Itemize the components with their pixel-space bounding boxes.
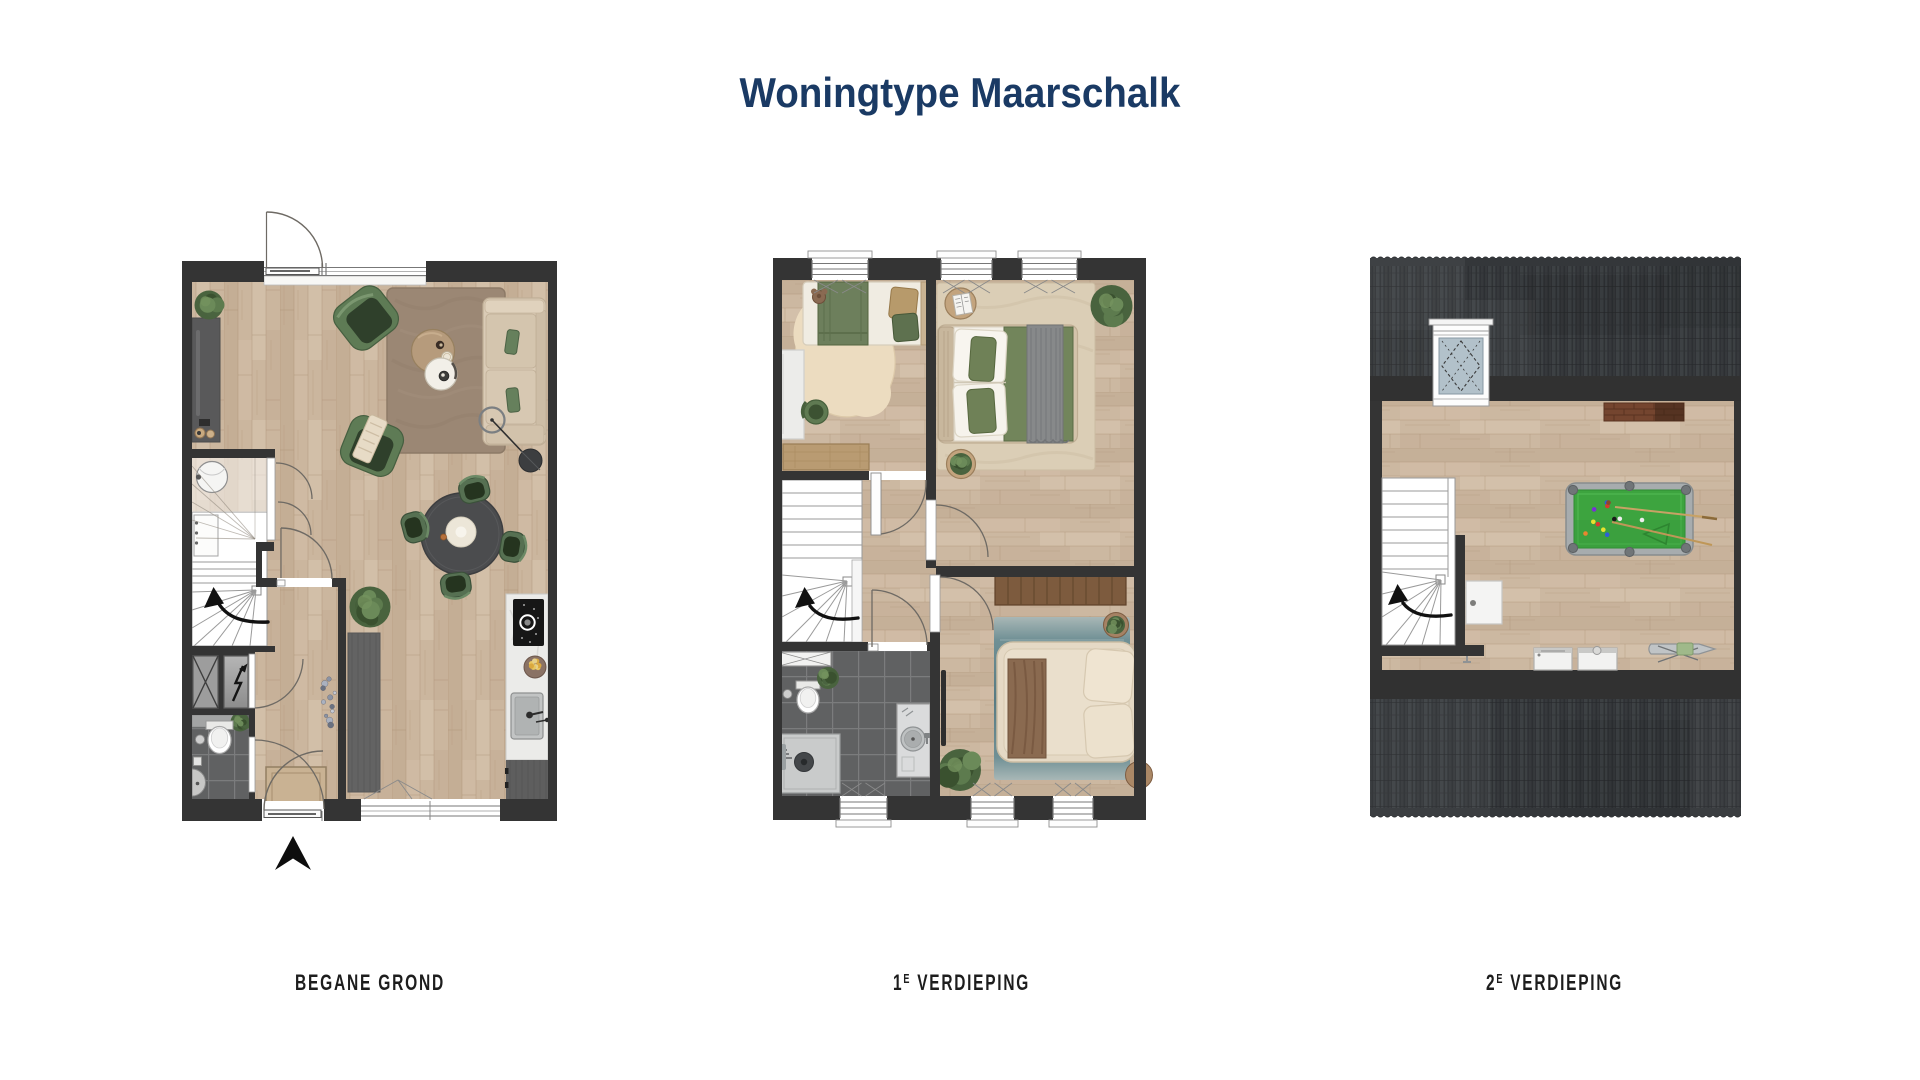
- svg-text:BEGANE GROND: BEGANE GROND: [295, 970, 445, 995]
- svg-text:1E VERDIEPING: 1E VERDIEPING: [893, 970, 1030, 995]
- svg-text:Woningtype Maarschalk: Woningtype Maarschalk: [740, 69, 1182, 116]
- svg-text:2E VERDIEPING: 2E VERDIEPING: [1486, 970, 1623, 995]
